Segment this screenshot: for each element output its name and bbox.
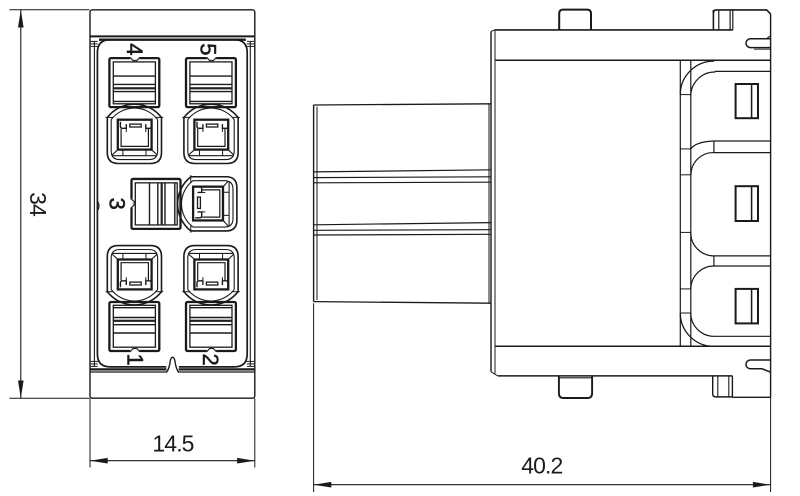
svg-text:14.5: 14.5 <box>152 430 193 456</box>
svg-text:2: 2 <box>198 354 223 366</box>
svg-text:3: 3 <box>105 198 130 210</box>
svg-text:1: 1 <box>123 354 148 366</box>
svg-text:5: 5 <box>196 43 221 55</box>
svg-text:34: 34 <box>25 192 51 217</box>
svg-text:40.2: 40.2 <box>521 453 562 479</box>
svg-text:4: 4 <box>122 43 147 55</box>
